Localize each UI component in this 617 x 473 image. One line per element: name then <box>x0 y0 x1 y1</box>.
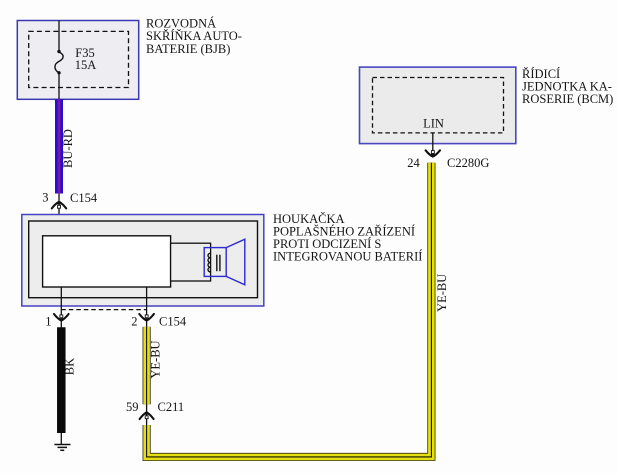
svg-text:1: 1 <box>45 315 51 329</box>
svg-text:INTEGROVANOU BATERIÍ: INTEGROVANOU BATERIÍ <box>273 249 422 263</box>
svg-text:3: 3 <box>42 191 48 205</box>
svg-text:2: 2 <box>131 315 137 329</box>
svg-text:BU-RD: BU-RD <box>61 129 75 168</box>
svg-text:15A: 15A <box>75 58 97 72</box>
svg-text:BK: BK <box>63 358 77 375</box>
svg-text:24: 24 <box>407 156 420 170</box>
svg-text:LIN: LIN <box>423 117 444 131</box>
svg-text:YE-BU: YE-BU <box>435 274 449 312</box>
svg-text:C154: C154 <box>159 315 187 329</box>
svg-text:YE-BU: YE-BU <box>148 340 162 378</box>
svg-text:C2280G: C2280G <box>447 156 489 170</box>
svg-text:C154: C154 <box>70 191 98 205</box>
svg-text:BATERIE (BJB): BATERIE (BJB) <box>146 42 230 56</box>
svg-text:59: 59 <box>126 400 139 414</box>
svg-text:C211: C211 <box>158 400 185 414</box>
svg-text:ROSERIE (BCM): ROSERIE (BCM) <box>522 92 613 106</box>
